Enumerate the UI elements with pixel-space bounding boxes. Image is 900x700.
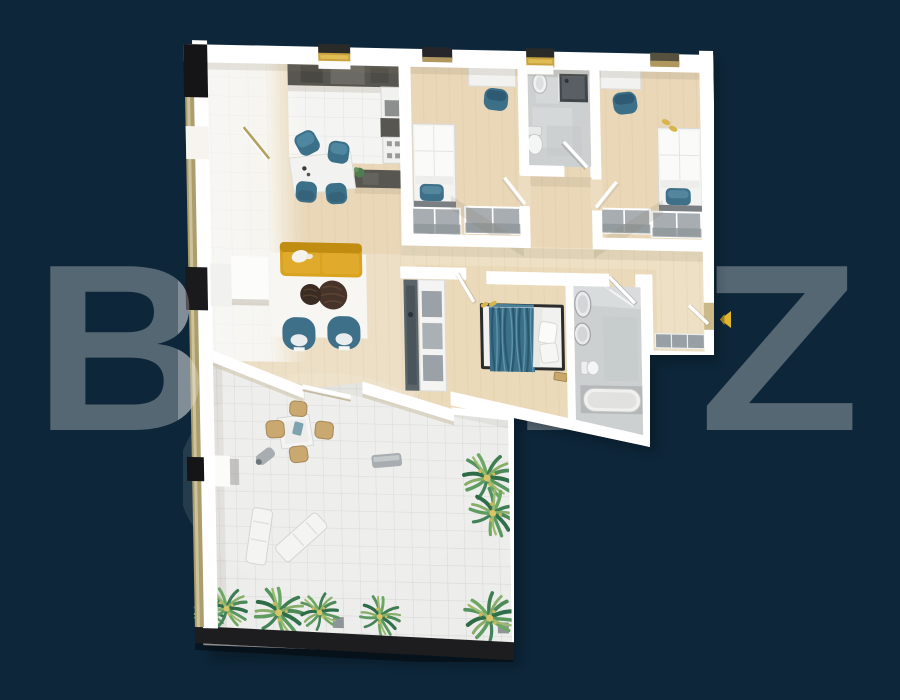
svg-text:Z: Z xyxy=(699,216,860,481)
